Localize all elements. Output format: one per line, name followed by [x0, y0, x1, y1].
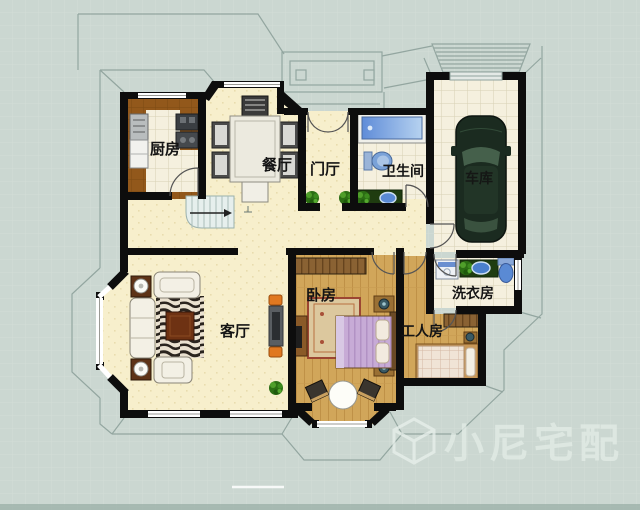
car-mirror	[505, 146, 511, 156]
car-mirror	[451, 146, 457, 156]
wardrobe	[294, 258, 366, 274]
room-label-bedroom: 卧房	[306, 286, 336, 304]
round-table	[329, 381, 357, 409]
room-label-dining: 餐厅	[262, 156, 292, 174]
sink	[380, 193, 396, 204]
room-label-worker: 工人房	[401, 323, 443, 340]
toilet	[499, 264, 513, 283]
room-label-bathroom: 卫生间	[382, 163, 424, 180]
pillow	[376, 343, 389, 363]
pillow	[466, 348, 475, 376]
bottom-edge-strip	[0, 504, 640, 510]
room-label-entry: 门厅	[310, 160, 340, 178]
kitchen-sink-unit	[130, 114, 148, 140]
dining-chair	[242, 182, 268, 202]
loveseat	[154, 272, 200, 298]
speaker	[269, 347, 282, 357]
dining-chair	[242, 96, 268, 116]
room-label-garage: 车库	[465, 170, 493, 187]
plant-icon	[356, 191, 370, 205]
plant-icon	[305, 191, 319, 205]
toilet-tank	[364, 152, 372, 170]
speaker	[269, 295, 282, 305]
watermark-brand-text: 小尼宅配	[444, 421, 624, 467]
floorplan-image: 厨房 餐厅 门厅 卫生间 车库 客厅 卧房 工人房 洗衣房 小尼宅配	[0, 0, 640, 510]
armchair	[154, 357, 192, 383]
sofa	[130, 298, 155, 358]
pillow	[376, 320, 389, 340]
room-label-kitchen: 厨房	[150, 140, 180, 158]
single-bed	[418, 346, 464, 378]
room-label-living: 客厅	[219, 322, 250, 340]
floorplan-canvas: 厨房 餐厅 门厅 卫生间 车库 客厅 卧房 工人房 洗衣房 小尼宅配	[0, 0, 640, 510]
plant-icon	[269, 381, 283, 395]
room-label-laundry: 洗衣房	[452, 285, 494, 302]
laundry-sink	[472, 262, 490, 274]
plant-icon	[459, 261, 473, 275]
